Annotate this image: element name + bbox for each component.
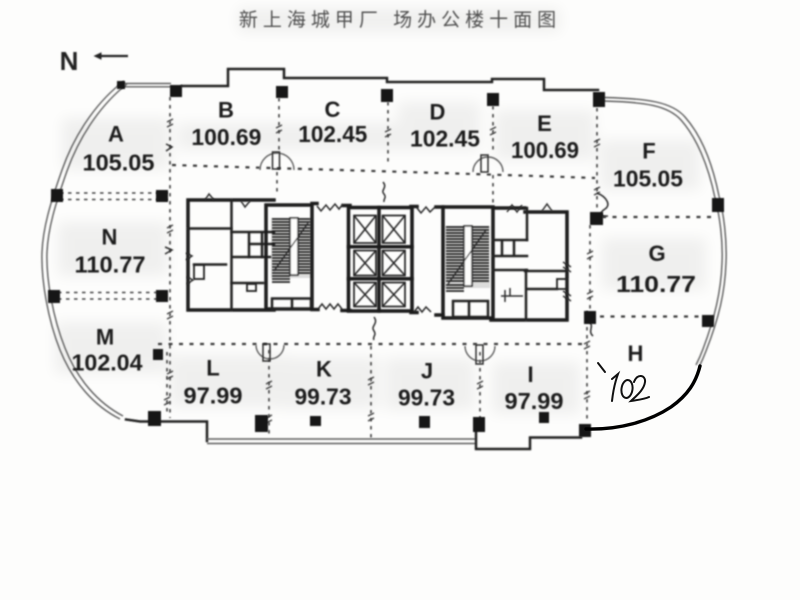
svg-text:100.69: 100.69 (511, 137, 579, 163)
svg-text:A: A (108, 122, 124, 147)
svg-text:K: K (316, 357, 332, 382)
svg-text:102.45: 102.45 (410, 126, 480, 152)
svg-text:新上海城甲厂 场办公楼十面图: 新上海城甲厂 场办公楼十面图 (239, 9, 561, 31)
svg-text:G: G (648, 241, 665, 266)
svg-text:110.77: 110.77 (75, 252, 146, 278)
svg-text:99.73: 99.73 (295, 384, 352, 410)
svg-text:100.69: 100.69 (191, 124, 261, 150)
svg-text:E: E (537, 111, 552, 136)
svg-text:97.99: 97.99 (184, 383, 243, 409)
svg-text:D: D (430, 100, 446, 125)
svg-text:110.77: 110.77 (616, 271, 696, 297)
svg-text:C: C (325, 97, 341, 122)
svg-text:102.04: 102.04 (72, 350, 143, 376)
svg-text:105.05: 105.05 (613, 166, 683, 192)
svg-text:L: L (206, 356, 219, 381)
svg-text:M: M (96, 325, 114, 350)
svg-text:H: H (628, 341, 644, 366)
svg-text:J: J (421, 359, 433, 384)
svg-text:97.99: 97.99 (505, 388, 564, 414)
svg-text:F: F (642, 139, 655, 164)
svg-text:I: I (527, 362, 533, 387)
svg-text:N: N (60, 46, 79, 76)
svg-text:B: B (218, 98, 234, 123)
svg-text:102.45: 102.45 (298, 121, 367, 147)
svg-text:99.73: 99.73 (398, 385, 455, 411)
svg-text:105.05: 105.05 (83, 150, 155, 176)
svg-text:N: N (102, 225, 118, 250)
